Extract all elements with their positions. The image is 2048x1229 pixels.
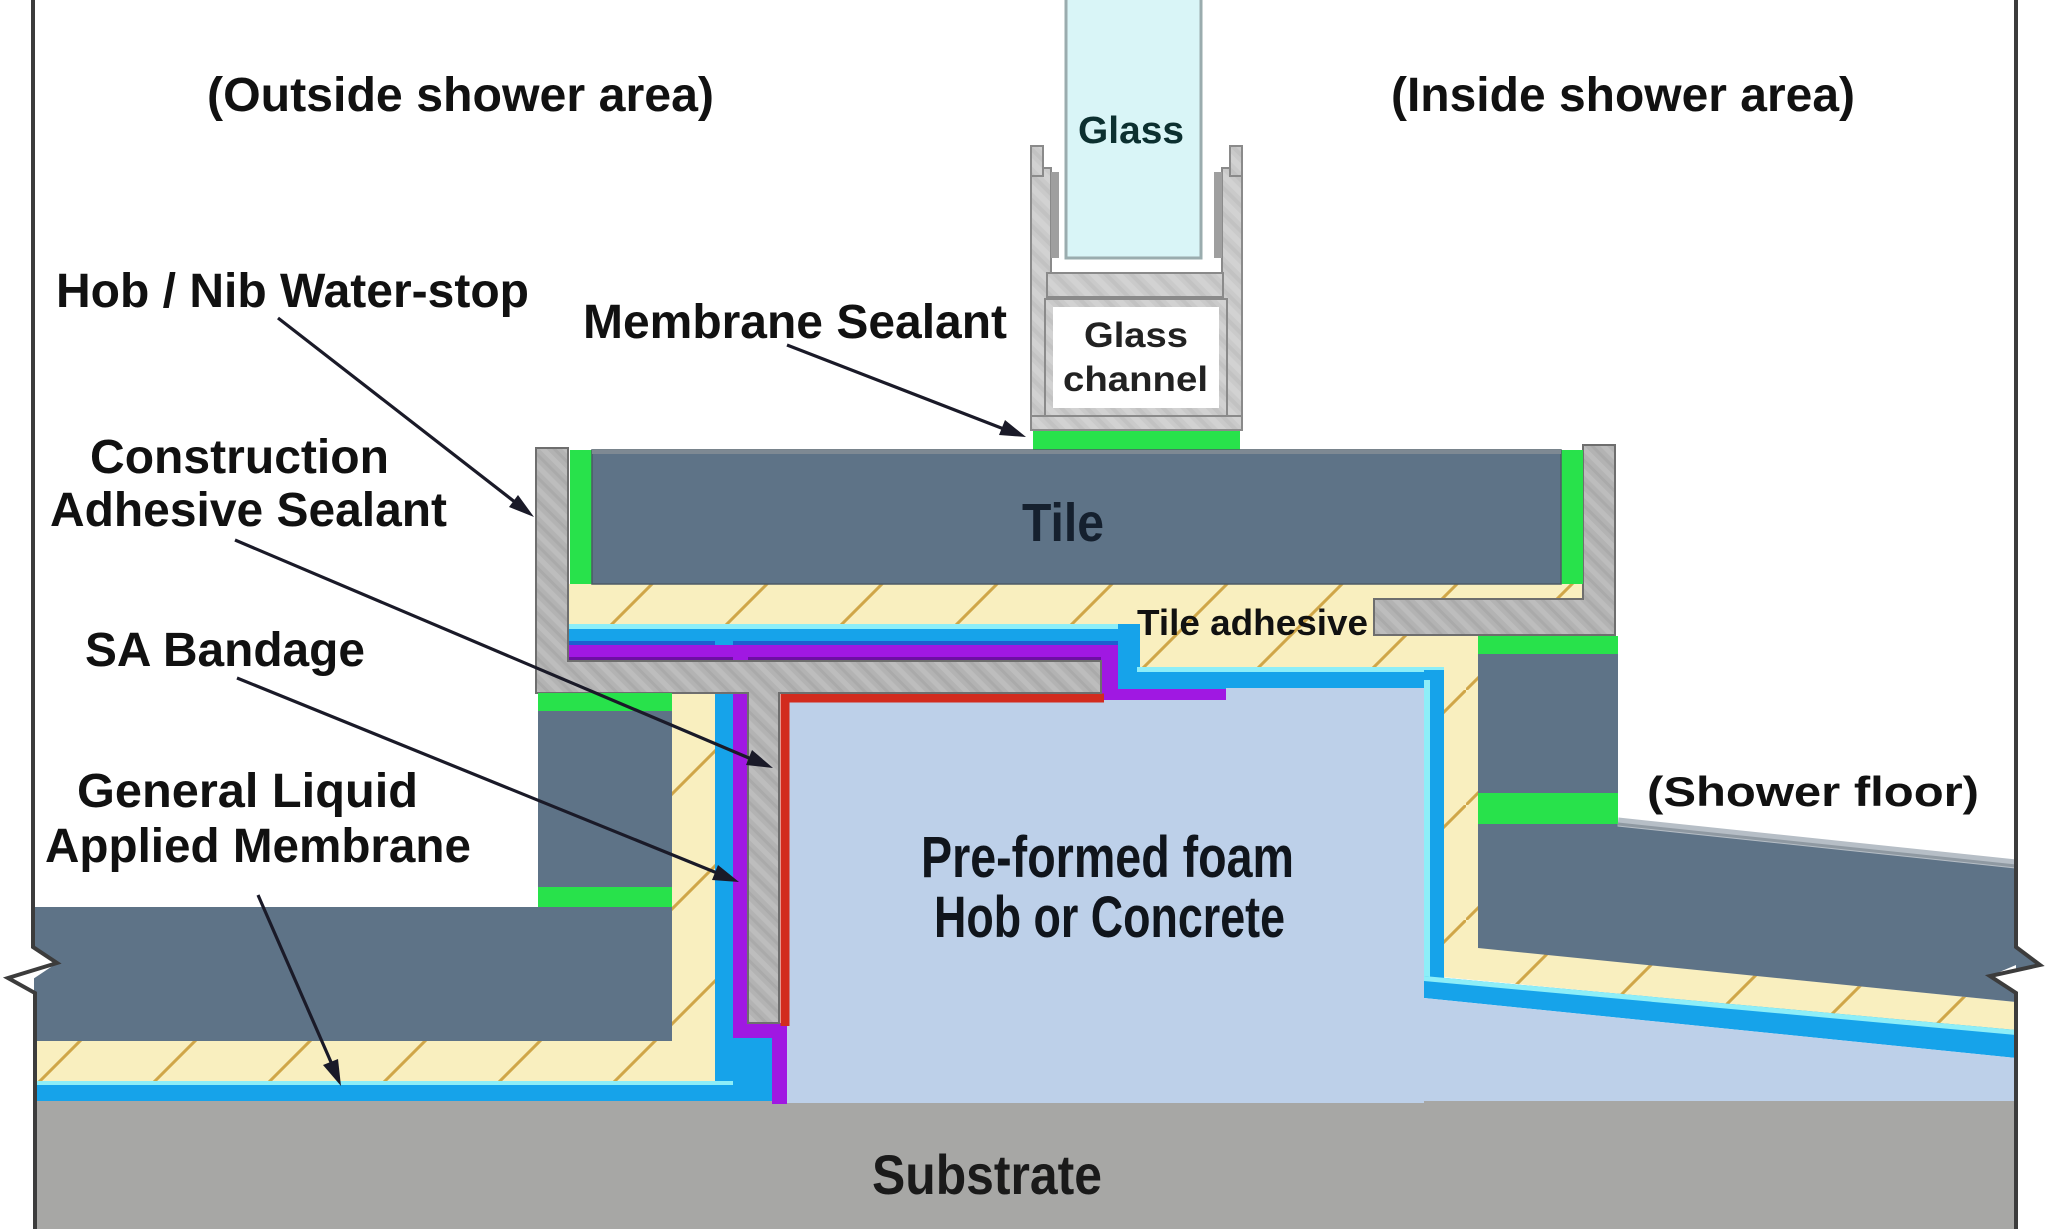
- svg-text:Tile adhesive: Tile adhesive: [1137, 602, 1368, 643]
- svg-text:Adhesive Sealant: Adhesive Sealant: [50, 484, 447, 537]
- svg-text:(Inside shower area): (Inside shower area): [1391, 69, 1855, 122]
- svg-text:Hob / Nib Water-stop: Hob / Nib Water-stop: [56, 265, 529, 318]
- svg-text:Glass: Glass: [1084, 316, 1188, 355]
- svg-text:Applied Membrane: Applied Membrane: [45, 820, 471, 873]
- svg-text:SA Bandage: SA Bandage: [85, 624, 365, 677]
- svg-text:Glass: Glass: [1078, 110, 1184, 152]
- svg-text:Construction: Construction: [90, 431, 389, 484]
- svg-text:Hob or Concrete: Hob or Concrete: [934, 885, 1285, 950]
- svg-text:Tile: Tile: [1022, 493, 1104, 553]
- svg-text:(Shower floor): (Shower floor): [1647, 768, 1979, 815]
- svg-text:channel: channel: [1063, 360, 1208, 399]
- svg-text:General Liquid: General Liquid: [77, 765, 418, 818]
- svg-text:(Outside shower area): (Outside shower area): [207, 69, 714, 122]
- svg-text:Membrane Sealant: Membrane Sealant: [583, 296, 1007, 349]
- svg-text:Substrate: Substrate: [872, 1143, 1102, 1206]
- svg-text:Pre-formed foam: Pre-formed foam: [921, 825, 1294, 890]
